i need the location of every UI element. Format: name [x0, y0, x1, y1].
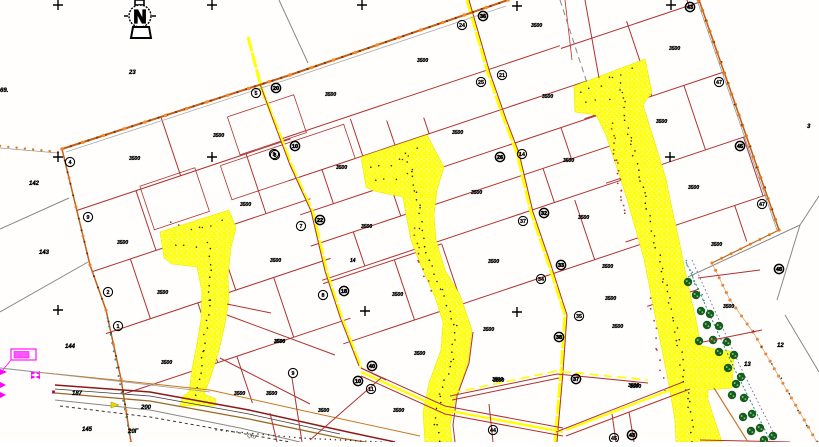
svg-text:3500: 3500 [483, 327, 494, 333]
svg-text:43: 43 [629, 433, 635, 439]
svg-text:3500: 3500 [417, 58, 428, 64]
svg-text:3500: 3500 [266, 391, 277, 397]
svg-text:200: 200 [140, 405, 152, 411]
svg-text:3500: 3500 [392, 292, 403, 298]
svg-text:5: 5 [255, 91, 258, 97]
svg-text:37: 37 [520, 219, 526, 225]
svg-text:3500: 3500 [493, 378, 504, 384]
svg-text:3500: 3500 [542, 94, 553, 100]
svg-text:10: 10 [292, 144, 298, 150]
svg-text:4: 4 [69, 160, 72, 166]
svg-text:3500: 3500 [723, 304, 734, 310]
svg-text:43: 43 [687, 5, 693, 11]
svg-text:32: 32 [541, 211, 547, 217]
svg-text:35: 35 [576, 314, 582, 320]
svg-text:14: 14 [350, 258, 356, 264]
svg-text:24: 24 [459, 23, 465, 29]
svg-text:145: 145 [82, 427, 93, 433]
svg-text:8: 8 [322, 293, 325, 299]
svg-text:3500: 3500 [129, 156, 140, 162]
svg-text:3500: 3500 [240, 202, 251, 208]
svg-text:3500: 3500 [452, 130, 463, 136]
svg-text:3500: 3500 [117, 240, 128, 246]
svg-text:47: 47 [759, 202, 765, 208]
svg-text:23: 23 [128, 70, 136, 76]
svg-text:25: 25 [478, 80, 484, 86]
svg-text:142: 142 [29, 181, 40, 187]
svg-text:3500: 3500 [656, 119, 667, 125]
svg-text:3500: 3500 [336, 165, 347, 171]
svg-text:33: 33 [558, 263, 564, 269]
svg-text:3500: 3500 [628, 383, 639, 389]
svg-text:9: 9 [273, 152, 276, 158]
svg-text:3500: 3500 [270, 258, 281, 264]
svg-text:3500: 3500 [488, 259, 499, 265]
svg-text:18: 18 [341, 289, 347, 295]
svg-text:12: 12 [777, 343, 784, 349]
svg-text:20Γ: 20Γ [127, 429, 139, 435]
svg-text:26: 26 [497, 155, 503, 161]
svg-text:3500: 3500 [669, 46, 680, 52]
svg-text:69.: 69. [0, 88, 9, 94]
svg-text:20: 20 [273, 86, 279, 92]
svg-text:3500: 3500 [274, 339, 285, 345]
svg-text:45: 45 [611, 436, 617, 442]
svg-text:9: 9 [87, 215, 90, 221]
svg-text:144: 144 [65, 344, 76, 350]
svg-text:11: 11 [368, 387, 374, 393]
svg-text:22: 22 [317, 218, 323, 224]
svg-text:3500: 3500 [602, 264, 613, 270]
svg-text:3500: 3500 [578, 215, 589, 221]
svg-text:34: 34 [538, 277, 544, 283]
svg-text:N: N [134, 7, 147, 27]
svg-text:14: 14 [519, 152, 525, 158]
svg-text:3500: 3500 [393, 408, 404, 414]
svg-text:37: 37 [573, 377, 579, 383]
svg-text:1: 1 [117, 324, 120, 330]
svg-text:3500: 3500 [157, 290, 168, 296]
svg-text:47: 47 [716, 80, 722, 86]
svg-text:2: 2 [107, 290, 110, 296]
svg-text:44: 44 [490, 428, 496, 434]
svg-text:3500: 3500 [234, 391, 245, 397]
svg-text:3500: 3500 [605, 296, 616, 302]
svg-text:143: 143 [39, 250, 50, 256]
svg-text:3500: 3500 [161, 360, 172, 366]
svg-text:13: 13 [744, 362, 751, 368]
svg-text:10: 10 [355, 379, 361, 385]
svg-text:3500: 3500 [688, 185, 699, 191]
svg-text:36: 36 [480, 14, 486, 20]
svg-text:7: 7 [300, 224, 303, 230]
svg-text:187: 187 [72, 391, 83, 397]
svg-text:3500: 3500 [414, 351, 425, 357]
svg-text:3500: 3500 [325, 92, 336, 98]
svg-text:48: 48 [776, 267, 782, 273]
svg-text:3500: 3500 [213, 133, 224, 139]
svg-text:3500: 3500 [612, 324, 623, 330]
svg-text:40: 40 [369, 364, 375, 370]
svg-text:3500: 3500 [318, 408, 329, 414]
svg-text:3500: 3500 [711, 242, 722, 248]
svg-text:Çay: Çay [247, 433, 258, 440]
svg-text:38: 38 [556, 335, 562, 341]
svg-text:3500: 3500 [471, 190, 482, 196]
svg-text:3500: 3500 [531, 23, 542, 29]
svg-text:21: 21 [499, 73, 505, 79]
svg-text:9: 9 [292, 371, 295, 377]
svg-text:3500: 3500 [563, 158, 574, 164]
svg-text:45: 45 [737, 144, 743, 150]
svg-text:3500: 3500 [361, 224, 372, 230]
